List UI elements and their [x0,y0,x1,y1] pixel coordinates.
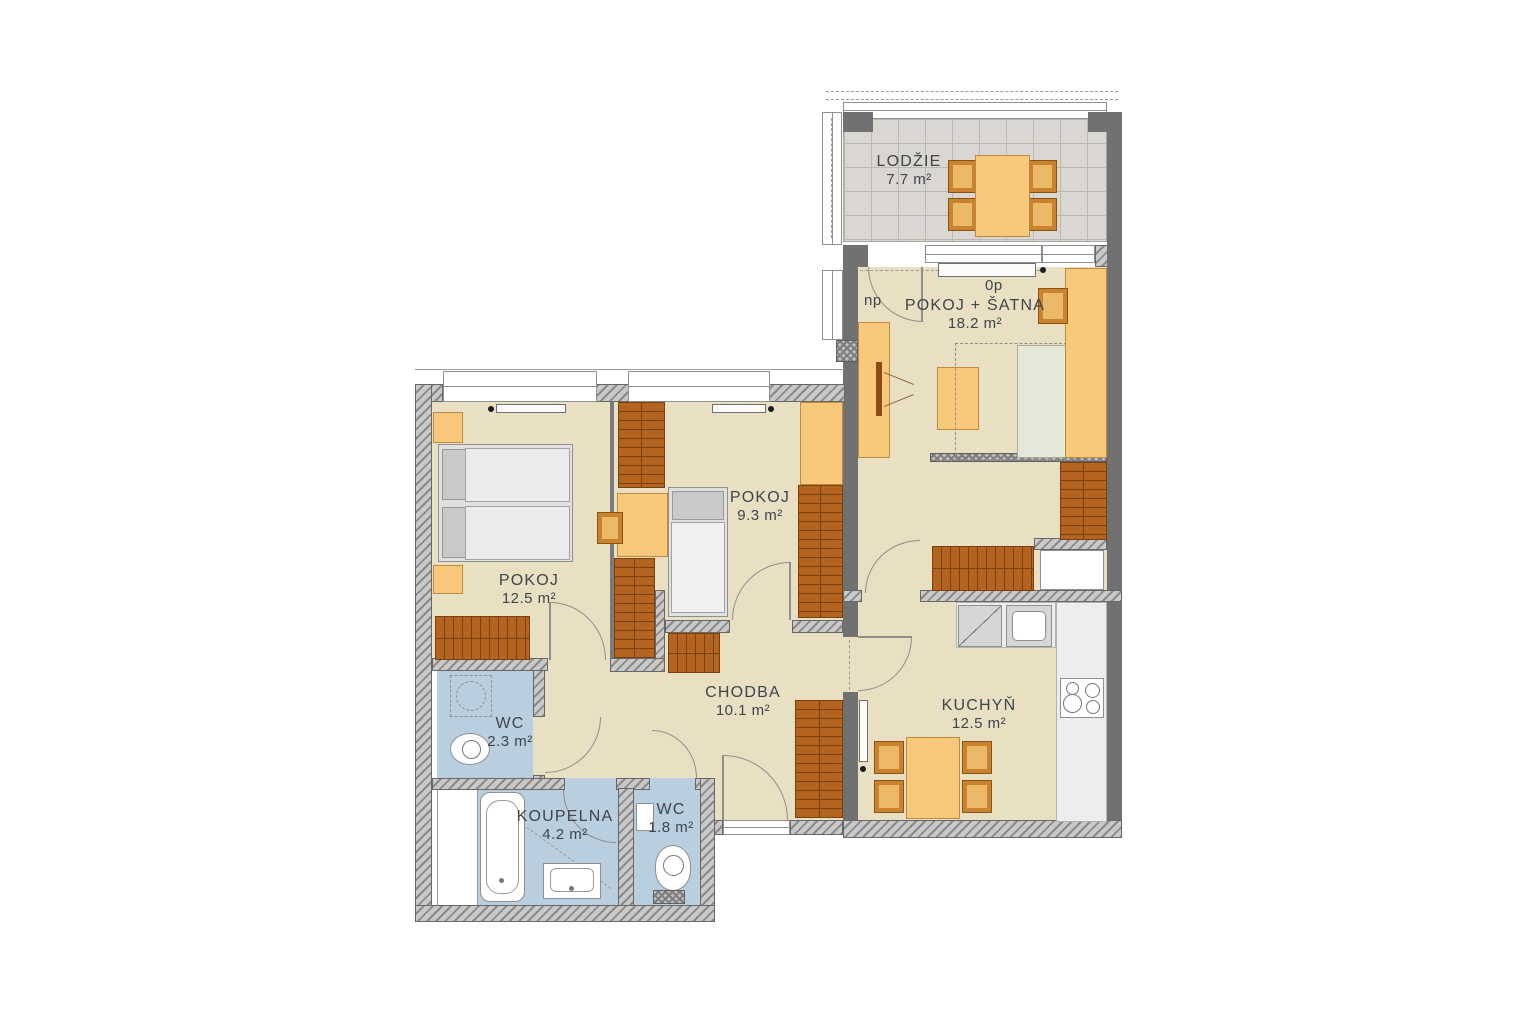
room-name: POKOJ + ŠATNA [895,296,1055,315]
closet-wardrobe [1060,462,1107,540]
wall-bath-north [432,778,565,790]
facade-line [415,369,845,370]
pillow [442,449,466,500]
room-name: WC [455,714,565,733]
room-name: POKOJ [680,488,840,507]
room-label-chodba: CHODBA 10.1 m² [663,683,823,720]
radiator-valve [768,406,774,412]
wall-kitchen-north [920,590,1122,602]
roof-outline-dashed [826,99,1118,100]
door-threshold [730,620,792,634]
room-area: 12.5 m² [449,590,609,608]
outer-wall-south [415,905,715,922]
kitchen-chair [874,741,904,774]
kitchen-table [906,737,960,819]
burner [1063,694,1082,713]
radiator-valve [488,406,494,412]
sofa-bed [1017,345,1067,458]
room-name: KUCHYŇ [899,696,1059,715]
door-threshold [548,658,608,672]
room-name: POKOJ [449,571,609,590]
wardrobe [435,616,530,660]
wall-closet-column [655,590,665,660]
loggia-glazing [843,102,1107,119]
wall-entrance-right [790,820,843,835]
door-threshold [843,637,858,692]
kitchen-chair [874,780,904,813]
shaft-hatch [653,890,685,904]
annotation-0p: 0p [985,277,1003,294]
burner [1066,682,1079,695]
fridge [1040,550,1104,590]
wall-bedroom9-south [792,620,843,633]
burner [1086,700,1100,714]
nightstand [433,412,463,443]
room-label-pokoj-12: POKOJ 12.5 m² [449,571,609,608]
door-leaf [858,636,912,638]
shaft-niche [437,788,478,906]
loggia-chair [1028,198,1057,231]
cabinet [800,402,843,485]
closet-wardrobe [932,546,1034,591]
window-balcony [1042,245,1095,263]
drying-rack [958,605,1002,647]
loggia-pier-left [843,112,873,132]
outer-wall-east [1107,112,1122,838]
washing-machine-drum [456,681,486,711]
room-label-kuchyn: KUCHYŇ 12.5 m² [899,696,1059,733]
toilet-bowl [663,855,684,876]
annotation-np: np [864,292,882,309]
room-name: LODŽIE [829,152,989,171]
blanket [465,506,570,560]
insulation-block [836,340,858,362]
room-area: 18.2 m² [895,315,1055,333]
wardrobe [618,402,665,488]
tv-cabinet [858,322,890,458]
entrance-threshold [723,820,790,835]
wall-west-wing [843,692,858,822]
hall-wardrobe [668,633,720,673]
washbasin-drain [569,886,574,891]
window-west [822,270,843,340]
room-area: 10.1 m² [663,702,823,720]
wall-kitchen-north [843,590,862,602]
wall-wc1-east [700,778,715,906]
blanket [671,522,725,613]
wardrobe [614,558,655,658]
tv-icon [876,362,882,416]
door-threshold [565,778,616,790]
room-label-wc2: WC 2.3 m² [455,714,565,751]
room-area: 1.8 m² [615,819,727,837]
floor-plan: LODŽIE 7.7 m² POKOJ + ŠATNA 18.2 m² POKO… [0,0,1536,1024]
window-bedroom-9 [628,371,770,402]
desk-chair [597,512,623,544]
outer-wall-south-wing [843,820,1122,838]
bathtub-drain [499,878,504,883]
room-area: 7.7 m² [829,171,989,189]
door-axis-dashed [849,640,850,690]
pillow [442,507,466,558]
radiator [496,404,566,413]
blanket [465,448,570,502]
roof-outline-dashed [826,91,1118,92]
desk-wardrobe-strip [1065,268,1107,458]
window-bedroom-12 [443,371,597,402]
burner [1085,683,1100,698]
room-label-pokoj-satna: POKOJ + ŠATNA 18.2 m² [895,296,1055,333]
window-balcony [925,245,1042,263]
door-leaf [549,602,551,660]
room-name: CHODBA [663,683,823,702]
room-label-pokoj-9: POKOJ 9.3 m² [680,488,840,525]
room-label-lodzie: LODŽIE 7.7 m² [829,152,989,189]
room-area: 2.3 m² [455,733,565,751]
kitchen-chair [962,741,992,774]
outer-wall-west [415,384,432,922]
door-leaf [789,562,791,620]
radiator [859,700,868,762]
room-name: WC [615,800,727,819]
wall-west-wing [843,245,858,637]
radiator [712,404,766,413]
kitchen-chair [962,780,992,813]
door-threshold [650,778,695,790]
wall-closet-column-south [610,658,665,672]
room-label-wc1: WC 1.8 m² [615,800,727,837]
room-area: 12.5 m² [899,715,1059,733]
desk [617,493,668,557]
loggia-chair [948,198,977,231]
room-area: 9.3 m² [680,507,840,525]
wall-wc2-east [533,670,545,717]
loggia-chair [1028,160,1057,193]
wall-bedroom9-south [665,620,730,633]
sink-basin [1012,611,1046,641]
radiator-valve [1040,267,1046,273]
radiator-valve [860,766,866,772]
radiator [938,263,1036,277]
